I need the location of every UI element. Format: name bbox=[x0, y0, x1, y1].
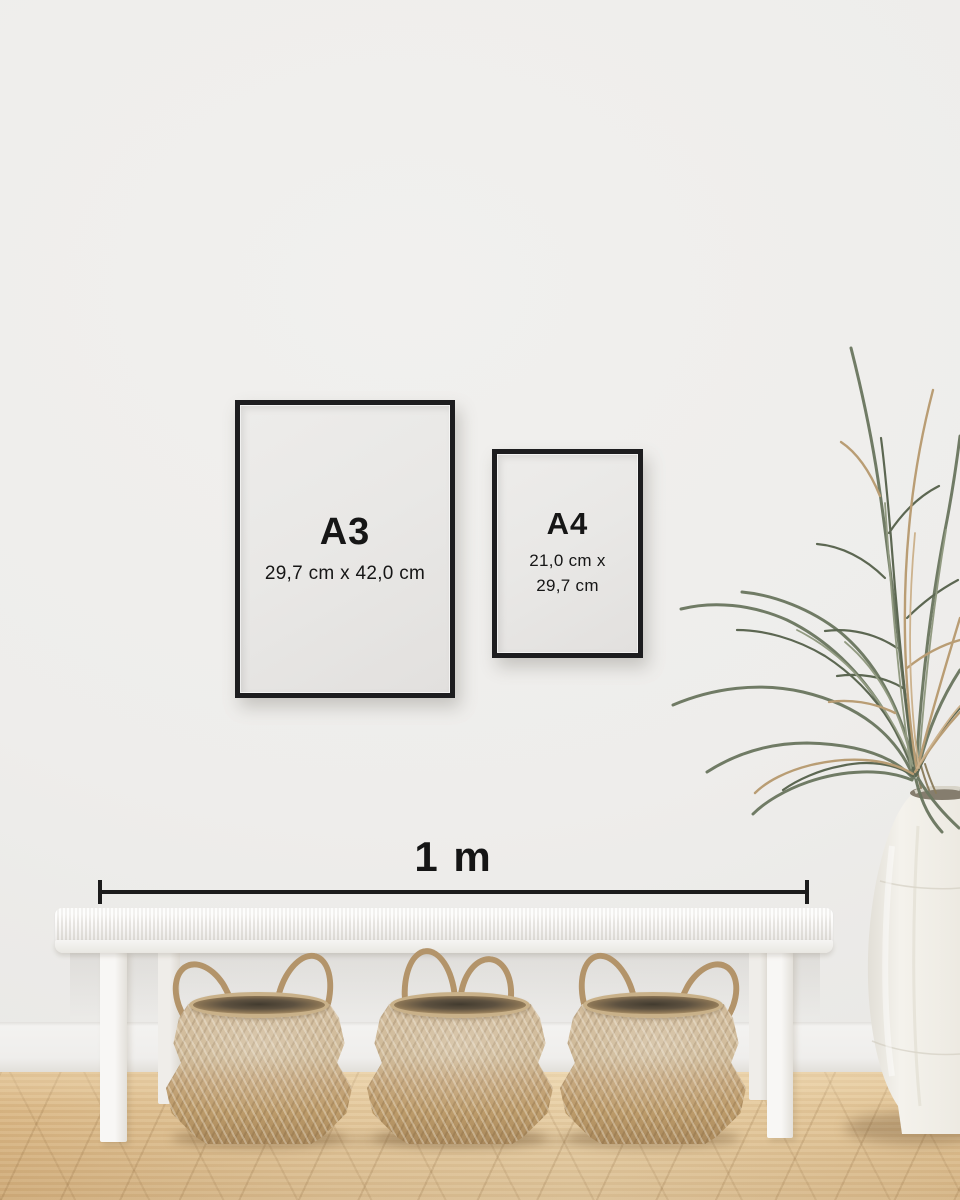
a4-size-label: A4 bbox=[547, 508, 589, 539]
basket-rim bbox=[390, 992, 530, 1018]
basket-body bbox=[166, 1004, 352, 1144]
a4-dimensions-line1: 21,0 cm x bbox=[529, 549, 605, 574]
storage-basket-right bbox=[560, 992, 746, 1144]
basket-rim bbox=[583, 992, 723, 1018]
a4-frame: A4 21,0 cm x 29,7 cm bbox=[492, 449, 643, 658]
a3-poster: A3 29,7 cm x 42,0 cm bbox=[240, 405, 450, 693]
bench-front-rail bbox=[55, 940, 833, 953]
a4-poster: A4 21,0 cm x 29,7 cm bbox=[497, 454, 638, 653]
basket-body bbox=[560, 1004, 746, 1144]
bench-leg-front-right bbox=[767, 950, 793, 1138]
basket-body bbox=[367, 1004, 553, 1144]
a3-size-label: A3 bbox=[320, 513, 371, 551]
a4-dimensions-line2: 29,7 cm bbox=[529, 574, 605, 599]
scale-bar bbox=[100, 890, 807, 894]
poster-size-mockup-scene: A3 29,7 cm x 42,0 cm A4 21,0 cm x 29,7 c… bbox=[0, 0, 960, 1200]
storage-basket-left bbox=[166, 992, 352, 1144]
a3-frame: A3 29,7 cm x 42,0 cm bbox=[235, 400, 455, 698]
bench-leg-front-left bbox=[100, 950, 127, 1142]
bench-leg-back-right bbox=[749, 950, 769, 1100]
scale-tick-left bbox=[98, 880, 102, 904]
a4-dimensions: 21,0 cm x 29,7 cm bbox=[529, 549, 605, 598]
scale-tick-right bbox=[805, 880, 809, 904]
bench-woven-top bbox=[55, 908, 833, 942]
a3-dimensions: 29,7 cm x 42,0 cm bbox=[265, 563, 425, 585]
palm-plant bbox=[645, 318, 960, 843]
storage-basket-middle bbox=[367, 992, 553, 1144]
basket-rim bbox=[189, 992, 329, 1018]
